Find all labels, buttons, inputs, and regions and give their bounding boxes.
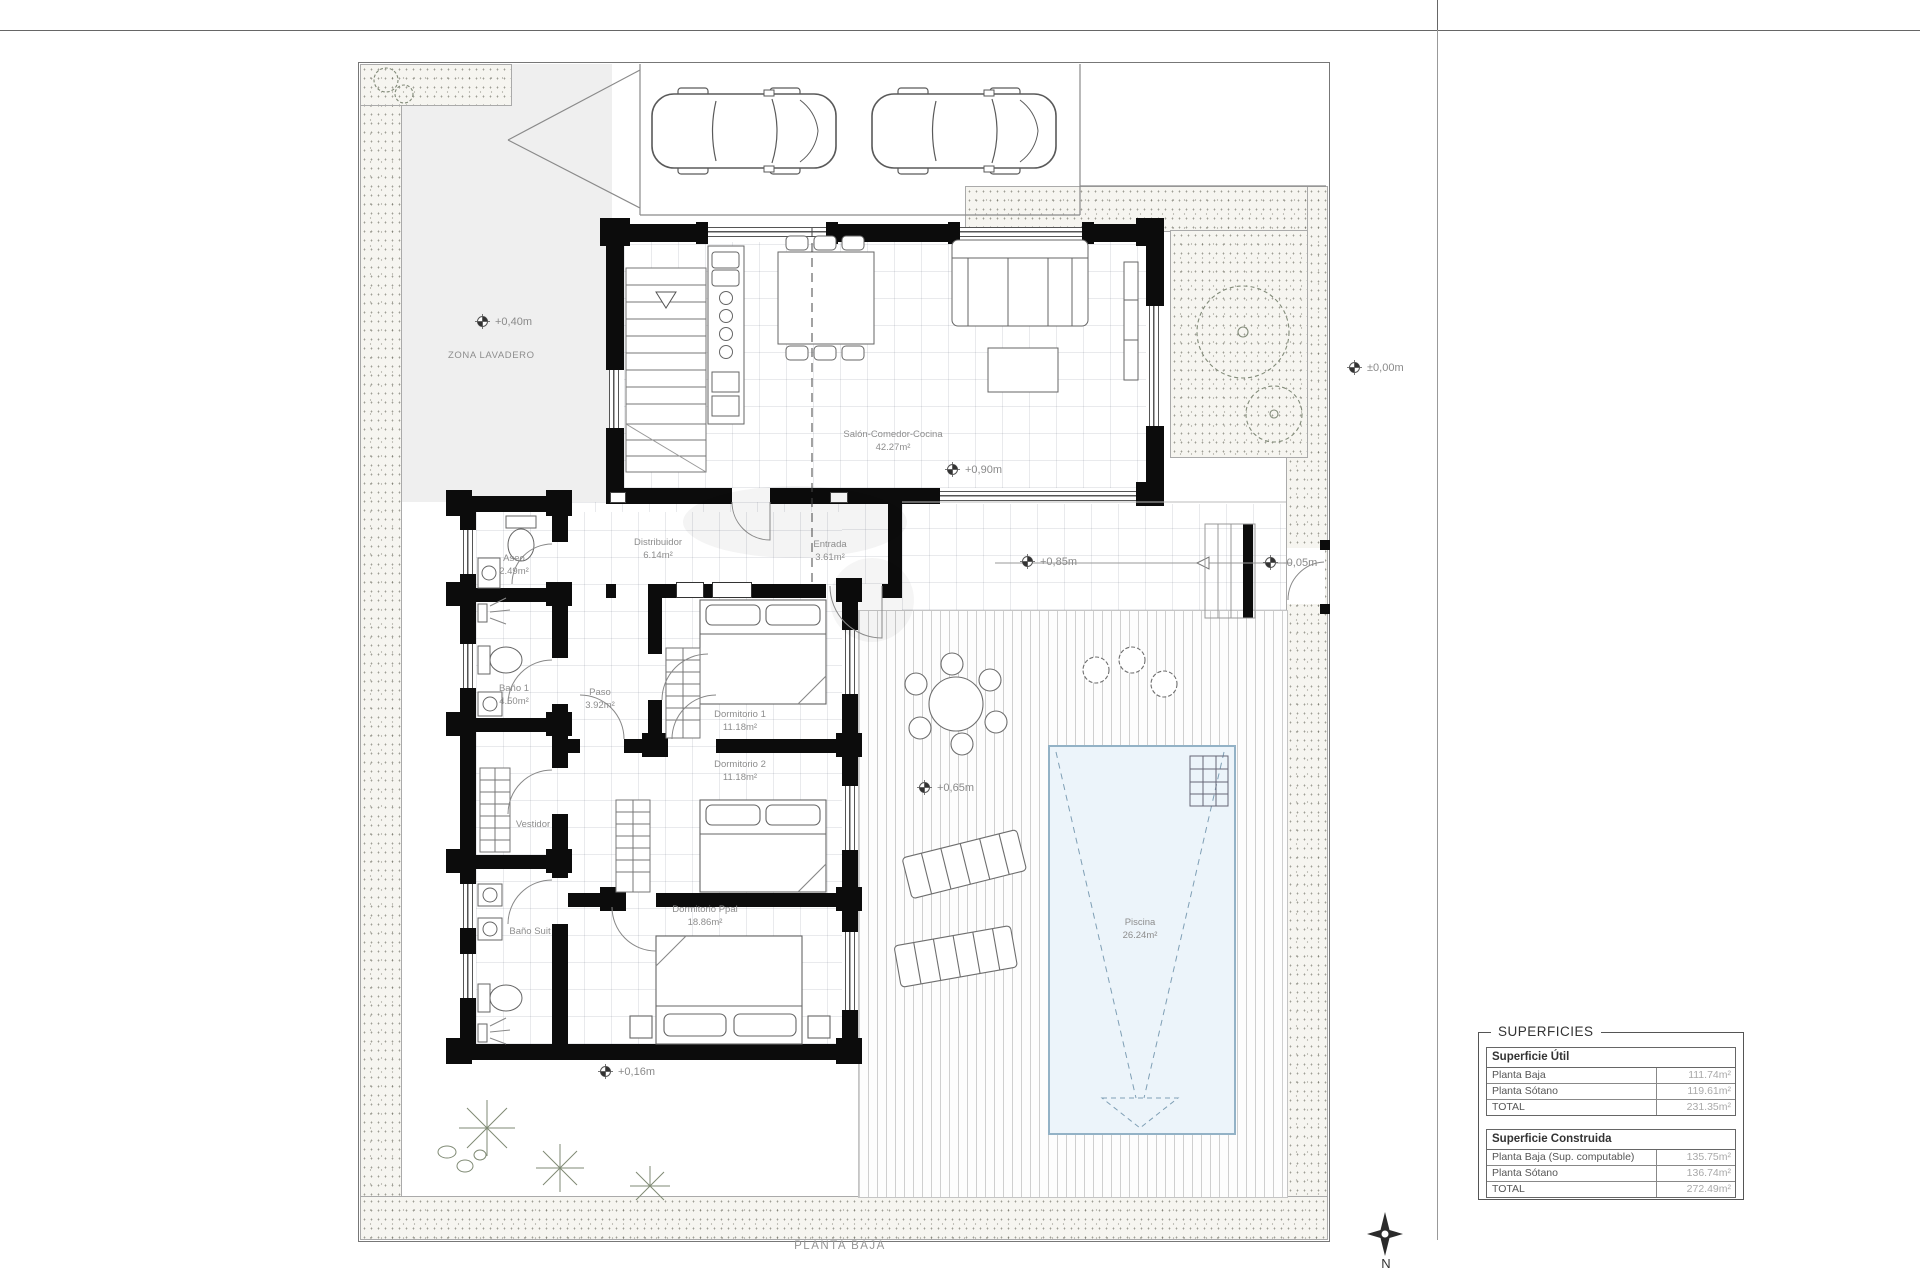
room-label-banosuit: Baño Suit	[480, 925, 580, 938]
table-row: Planta Baja 111.74m²	[1487, 1068, 1735, 1084]
room-label-entrada: Entrada3.61m²	[780, 538, 880, 565]
benchmark-icon	[1020, 554, 1035, 569]
table-row: TOTAL 272.49m²	[1487, 1182, 1735, 1197]
table-row: Planta Sótano 136.74m²	[1487, 1166, 1735, 1182]
room-label-piscina: Piscina26.24m²	[1080, 916, 1200, 943]
room-label-vestidor: Vestidor	[483, 818, 583, 831]
room-label-dormppal: Dormitorio Ppal18.86m²	[645, 903, 765, 930]
benchmark-icon	[1263, 555, 1278, 570]
benchmark-icon	[945, 462, 960, 477]
room-label-dormitorio1: Dormitorio 111.18m²	[680, 708, 800, 735]
level-marker-acceso: -0,05m	[1263, 555, 1317, 570]
room-label-dormitorio2: Dormitorio 211.18m²	[680, 758, 800, 785]
level-marker-lavadero: +0,40m	[475, 314, 532, 329]
table-row: Planta Baja (Sup. computable) 135.75m²	[1487, 1150, 1735, 1166]
floor-terrace	[902, 504, 1286, 610]
superficies-title: SUPERFICIES	[1491, 1024, 1601, 1039]
sheet-top-divider	[1437, 0, 1438, 30]
level-marker-salon: +0,90m	[945, 462, 1002, 477]
superficie-construida-box: Superficie Construida Planta Baja (Sup. …	[1486, 1129, 1736, 1198]
section-header: Superficie Útil	[1487, 1048, 1735, 1068]
garden-band-topleft	[360, 64, 512, 106]
garden-band-bottom	[360, 1196, 1328, 1240]
sheet-top-rule	[0, 0, 1920, 31]
benchmark-icon	[1347, 360, 1362, 375]
sheet-right-boundary	[1437, 30, 1438, 1240]
level-marker-calle: ±0,00m	[1347, 360, 1404, 375]
room-label-paso: Paso3.92m²	[560, 686, 640, 713]
room-label-aseo: Aseo2.49m²	[466, 552, 562, 579]
plan-title: PLANTA BAJA	[770, 1240, 910, 1252]
garden-right-block	[1170, 230, 1308, 458]
room-label-bano1: Baño 14.50m²	[466, 682, 562, 709]
superficie-util-box: Superficie Útil Planta Baja 111.74m² Pla…	[1486, 1047, 1736, 1116]
lavadero-patio	[400, 64, 612, 502]
level-marker-jardin: +0,16m	[598, 1064, 655, 1079]
level-marker-solarium: +0,65m	[917, 780, 974, 795]
north-label: N	[1368, 1256, 1404, 1271]
level-marker-terraza: +0,85m	[1020, 554, 1077, 569]
benchmark-icon	[475, 314, 490, 329]
section-header: Superficie Construida	[1487, 1130, 1735, 1150]
benchmark-icon	[917, 780, 932, 795]
floor-plan-sheet: ZONA LAVADERO Salón-Comedor-Cocina42.27m…	[0, 0, 1920, 1280]
room-label-distribuidor: Distribuidor6.14m²	[598, 536, 718, 563]
north-arrow-icon	[1367, 1212, 1403, 1256]
table-row: TOTAL 231.35m²	[1487, 1100, 1735, 1115]
zone-label: ZONA LAVADERO	[448, 350, 618, 361]
table-row: Planta Sótano 119.61m²	[1487, 1084, 1735, 1100]
superficies-table: SUPERFICIES Superficie Útil Planta Baja …	[1478, 1032, 1744, 1200]
benchmark-icon	[598, 1064, 613, 1079]
garden-band-left	[360, 64, 402, 1198]
room-label-salon: Salón-Comedor-Cocina42.27m²	[813, 428, 973, 455]
